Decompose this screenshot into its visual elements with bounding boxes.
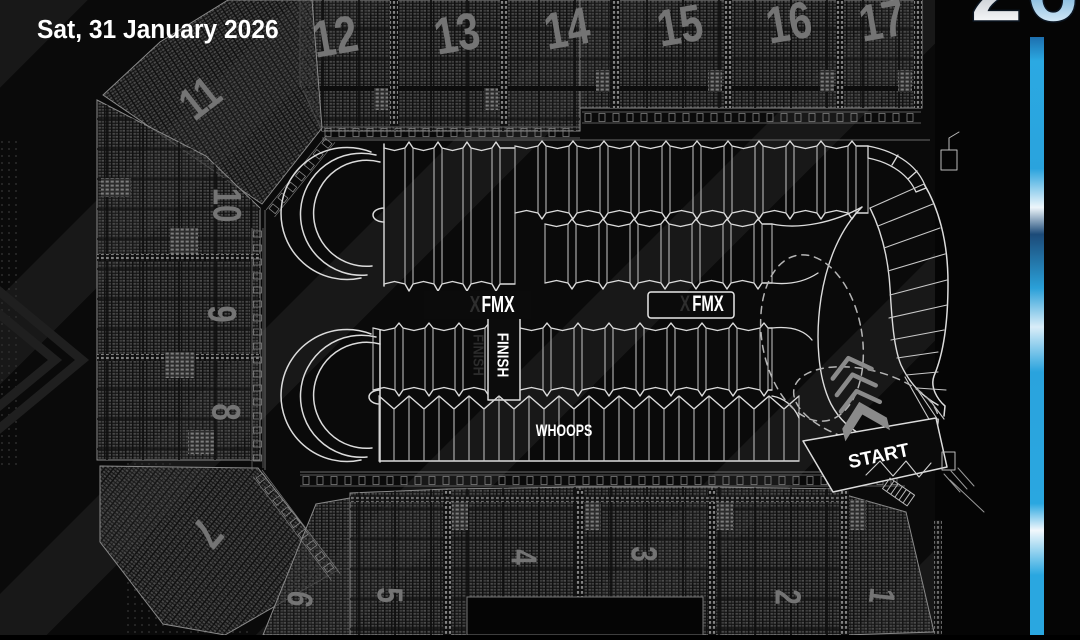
svg-text:17: 17: [855, 0, 910, 53]
svg-text:2: 2: [768, 589, 808, 605]
svg-text:9: 9: [200, 305, 245, 322]
svg-text:Sat, 31 January 2026: Sat, 31 January 2026: [37, 15, 279, 44]
svg-text:FINISH: FINISH: [470, 334, 487, 376]
svg-text:FINISH: FINISH: [493, 333, 510, 378]
svg-text:3: 3: [624, 546, 664, 562]
svg-text:15: 15: [653, 0, 708, 58]
svg-text:5: 5: [370, 587, 410, 603]
svg-text:WHOOPS: WHOOPS: [536, 422, 593, 440]
svg-text:X: X: [680, 292, 691, 316]
svg-text:8: 8: [204, 403, 249, 420]
svg-text:X: X: [470, 292, 481, 317]
svg-text:2: 2: [970, 0, 1023, 42]
svg-text:4: 4: [504, 549, 544, 565]
svg-text:10: 10: [205, 188, 250, 223]
svg-text:FMX: FMX: [692, 291, 724, 316]
svg-text:6: 6: [1026, 0, 1079, 42]
svg-text:16: 16: [762, 0, 817, 55]
svg-text:FMX: FMX: [481, 292, 514, 318]
svg-text:14: 14: [540, 0, 595, 61]
